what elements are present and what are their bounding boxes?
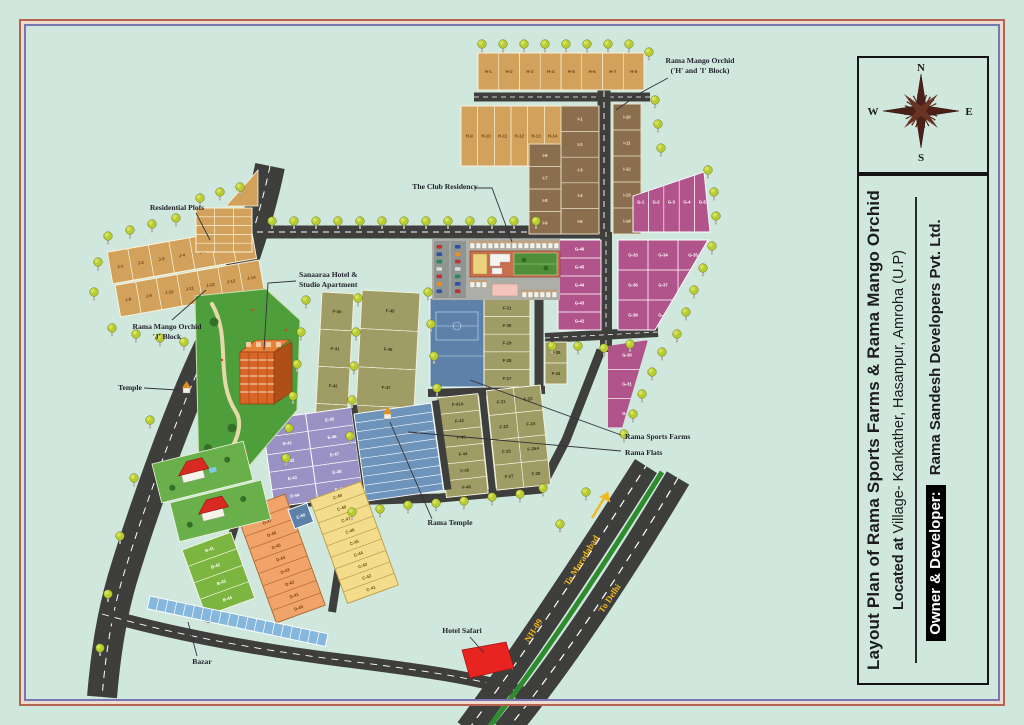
- house-icon: [554, 241, 559, 249]
- tree-icon: [350, 362, 359, 374]
- plot-label: I-8: [542, 198, 548, 203]
- block-f-bottom: F-41AF-42F-43F-44F-45F-46 F-21F-22F-23F-…: [436, 385, 551, 497]
- house-icon: [482, 241, 487, 249]
- plot-label: G-2: [653, 200, 661, 205]
- house-icon: [470, 241, 475, 249]
- plot-label: H-14: [548, 134, 558, 139]
- tree-icon: [499, 40, 508, 52]
- tree-icon: [516, 490, 525, 502]
- label-temple: Temple: [118, 383, 142, 392]
- tree-icon: [172, 214, 181, 226]
- house-icon: [476, 241, 481, 249]
- plot-label: I-10: [623, 115, 631, 120]
- title-divider: [915, 197, 917, 663]
- tree-icon: [654, 120, 663, 132]
- tree-icon: [710, 188, 719, 200]
- tree-icon: [638, 390, 647, 402]
- house-icon: [500, 241, 505, 249]
- plot-label: G-35: [688, 253, 698, 258]
- car-icon: [455, 252, 461, 256]
- sports-farm-field: [430, 298, 484, 387]
- sanaaraa-hotel-building: [240, 340, 292, 404]
- tree-icon: [712, 212, 721, 224]
- block-g-strips: G-1G-2G-3G-4G-5: [633, 172, 710, 232]
- tree-icon: [404, 501, 413, 513]
- car-icon: [437, 267, 443, 271]
- plot-label: H-2: [506, 69, 514, 74]
- svg-text:N: N: [917, 62, 925, 74]
- label-mango-orchid-j: Rama Mango Orchid: [132, 322, 202, 331]
- plot-label: G-34: [658, 253, 668, 258]
- plot-label: H-12: [515, 134, 525, 139]
- block-g-col: G-46G-45G-44G-43G-42: [558, 240, 601, 330]
- car-icon: [455, 245, 461, 249]
- car-icon: [455, 282, 461, 286]
- car-icon: [437, 260, 443, 264]
- tree-icon: [478, 40, 487, 52]
- plot-label: F-21: [497, 399, 507, 405]
- tree-icon: [126, 226, 135, 238]
- label-club-residency: The Club Residency: [412, 182, 478, 191]
- tree-icon: [645, 48, 654, 60]
- plot-label: G-44: [575, 283, 585, 288]
- plot-label: F-23: [499, 424, 509, 430]
- house-icon: [476, 280, 481, 288]
- block-hi-row1: H-1H-2H-3H-4H-5H-6H-7H-8: [478, 53, 644, 90]
- plot-label: I-4: [577, 193, 583, 198]
- carriageway-delhi: [505, 478, 678, 725]
- car-icon: [437, 252, 443, 256]
- tree-icon: [520, 40, 529, 52]
- plot-label: F-27: [504, 473, 514, 479]
- house-icon: [494, 241, 499, 249]
- plot-label: F-44: [458, 451, 468, 457]
- car-icon: [455, 267, 461, 271]
- house-icon: [536, 241, 541, 249]
- plot-label: G-42: [575, 319, 585, 324]
- plot-label: F-40: [332, 309, 342, 314]
- tree-icon: [657, 144, 666, 156]
- plot-label: H-7: [609, 69, 617, 74]
- tree-icon: [556, 520, 565, 532]
- plot-label: F-27: [503, 376, 512, 381]
- plot-label: G-30: [622, 352, 632, 357]
- svg-text:Studio Apartment: Studio Apartment: [299, 280, 358, 289]
- tree-icon: [682, 308, 691, 320]
- tree-icon: [574, 342, 583, 354]
- plot-label: G-43: [575, 301, 585, 306]
- house-icon: [470, 280, 475, 288]
- plot-label: F-42: [455, 418, 465, 424]
- plot-label: F-47: [382, 385, 392, 390]
- house-icon: [506, 241, 511, 249]
- tree-icon: [704, 166, 713, 178]
- tree-icon: [146, 416, 155, 428]
- house-icon: [534, 290, 539, 298]
- plot-label: F-41: [331, 346, 341, 351]
- label-sanaaraa: Sanaaraa Hotel &: [299, 270, 358, 279]
- tree-icon: [376, 505, 385, 517]
- svg-text:S: S: [918, 152, 924, 164]
- owner-line: Owner & Developer: Rama Sandesh Develope…: [926, 181, 946, 679]
- plot-label: H-9: [466, 134, 474, 139]
- tree-icon: [108, 324, 117, 336]
- house-icon: [518, 241, 523, 249]
- plot-label: H-1: [485, 69, 493, 74]
- plot-label: I-14: [623, 219, 631, 224]
- plot-label: H-4: [547, 69, 555, 74]
- tree-icon: [148, 220, 157, 232]
- plot-label: F-45: [386, 308, 396, 313]
- tree-icon: [104, 232, 113, 244]
- plot-label: G-5: [699, 200, 707, 205]
- plot-label: H-8: [630, 69, 638, 74]
- tree-icon: [90, 288, 99, 300]
- svg-text:('H' and 'I' Block): ('H' and 'I' Block): [671, 66, 730, 75]
- highway: NH-09 To Moradabad To Delhi: [468, 466, 678, 725]
- house-icon: [488, 241, 493, 249]
- plot-label: H-3: [526, 69, 534, 74]
- compass-box: N S E W: [857, 56, 989, 174]
- label-bazar: Bazar: [192, 657, 212, 666]
- house-icon: [512, 241, 517, 249]
- tree-icon: [583, 40, 592, 52]
- plot-label: I-7: [542, 175, 548, 180]
- plot-label: F-31: [503, 305, 512, 310]
- car-icon: [455, 289, 461, 293]
- plot-label: F-28: [531, 471, 541, 477]
- plan-title: Layout Plan of Rama Sports Farms & Rama …: [864, 181, 884, 679]
- plot-label: G-33: [628, 253, 638, 258]
- plot-label: H-6: [589, 69, 597, 74]
- house-icon: [548, 241, 553, 249]
- plot-label: H-13: [531, 134, 541, 139]
- club-pink-building: [492, 284, 518, 296]
- tree-icon: [460, 497, 469, 509]
- block-b-green: B-41B-42B-43B-44: [182, 532, 255, 616]
- plan-location: Located at Village- Kankather, Hasanpur,…: [891, 181, 907, 679]
- tree-icon: [708, 242, 717, 254]
- tree-icon: [539, 484, 548, 496]
- tree-icon: [582, 488, 591, 500]
- tree-icon: [658, 348, 667, 360]
- plot-label: G-4: [683, 200, 691, 205]
- plot-label: G-3: [668, 200, 676, 205]
- tree-icon: [690, 286, 699, 298]
- owner-label-chip: Owner & Developer:: [926, 485, 946, 640]
- svg-text:E: E: [965, 106, 972, 118]
- tree-icon: [604, 40, 613, 52]
- plot-label: F-34: [552, 371, 561, 376]
- compass-rose-icon: N S E W: [859, 58, 983, 168]
- tree-icon: [541, 40, 550, 52]
- label-hotel-safari: Hotel Safari: [442, 626, 481, 635]
- tree-icon: [94, 258, 103, 270]
- title-panel: Layout Plan of Rama Sports Farms & Rama …: [857, 174, 989, 685]
- block-f-mid: F-31F-30F-29F-28F-27: [484, 299, 530, 387]
- plot-label: F-35: [552, 350, 561, 355]
- plot-label: G-46: [575, 247, 585, 252]
- plot-label: F-46: [462, 484, 472, 490]
- plot-label: F-25: [502, 449, 512, 455]
- tree-icon: [352, 328, 361, 340]
- plot-label: G-1: [637, 200, 645, 205]
- plot-cell: [678, 300, 708, 330]
- plot-label: F-45: [460, 467, 470, 473]
- plot-label: I-2: [577, 142, 583, 147]
- block-g-tail: G-30G-31G-32: [606, 340, 648, 428]
- tree-icon: [432, 499, 441, 511]
- house-icon: [528, 290, 533, 298]
- house-icon: [522, 290, 527, 298]
- plot-label: G-39: [628, 313, 638, 318]
- plot-label: G-36: [628, 283, 638, 288]
- block-i-a: I-1I-2I-3I-4I-5: [561, 106, 599, 234]
- label-sports-farms: Rama Sports Farms: [625, 432, 690, 441]
- car-icon: [455, 260, 461, 264]
- house-icon: [530, 241, 535, 249]
- svg-text:'J' Block: 'J' Block: [153, 332, 182, 341]
- plot-label: I-6: [542, 153, 548, 158]
- label-rama-temple: Rama Temple: [428, 518, 474, 527]
- car-icon: [437, 289, 443, 293]
- tree-icon: [651, 96, 660, 108]
- tree-icon: [302, 296, 311, 308]
- plot-label: F-30: [503, 323, 512, 328]
- tree-icon: [216, 188, 225, 200]
- house-icon: [524, 241, 529, 249]
- plot-label: G-45: [575, 265, 585, 270]
- tree-icon: [673, 330, 682, 342]
- plot-label: I-11: [623, 141, 631, 146]
- house-icon: [482, 280, 487, 288]
- label-mango-orchid-hi: Rama Mango Orchid: [665, 56, 735, 65]
- house-icon: [540, 290, 545, 298]
- plot-label: F-29: [503, 341, 512, 346]
- tree-icon: [130, 474, 139, 486]
- plot-label: I-12: [623, 167, 631, 172]
- house-icon: [546, 290, 551, 298]
- plot-label: F-28: [503, 358, 512, 363]
- plot-label: G-37: [658, 283, 668, 288]
- car-icon: [437, 245, 443, 249]
- svg-text:W: W: [868, 106, 879, 118]
- tree-icon: [629, 410, 638, 422]
- tree-icon: [625, 40, 634, 52]
- plot-label: I-1: [577, 116, 583, 121]
- plot-label: H-5: [568, 69, 576, 74]
- plot-label: H-11: [498, 134, 508, 139]
- tree-icon: [562, 40, 571, 52]
- plot-label: I-13: [623, 193, 631, 198]
- label-rama-flats: Rama Flats: [625, 448, 662, 457]
- tree-icon: [699, 264, 708, 276]
- car-icon: [455, 275, 461, 279]
- plot-label: F-46: [384, 347, 394, 352]
- house-icon: [552, 290, 557, 298]
- club-courtyard: [470, 251, 560, 277]
- tree-icon: [648, 368, 657, 380]
- car-icon: [437, 282, 443, 286]
- plot-label: F-24: [526, 421, 536, 427]
- plot-label: I-5: [577, 219, 583, 224]
- layout-plan-page: NH-09 To Moradabad To Delhi H-1H-2H-3H-4…: [0, 0, 1024, 725]
- label-residential-plots: Residential Plots: [150, 203, 204, 212]
- house-icon: [542, 241, 547, 249]
- car-icon: [437, 275, 443, 279]
- plot-label: G-31: [622, 382, 632, 387]
- plot-label: I-9: [542, 220, 548, 225]
- plot-label: F-42: [329, 383, 339, 388]
- plot-label: H-10: [481, 134, 491, 139]
- tree-icon: [488, 493, 497, 505]
- plot-label: I-3: [577, 168, 583, 173]
- tree-icon: [132, 330, 141, 342]
